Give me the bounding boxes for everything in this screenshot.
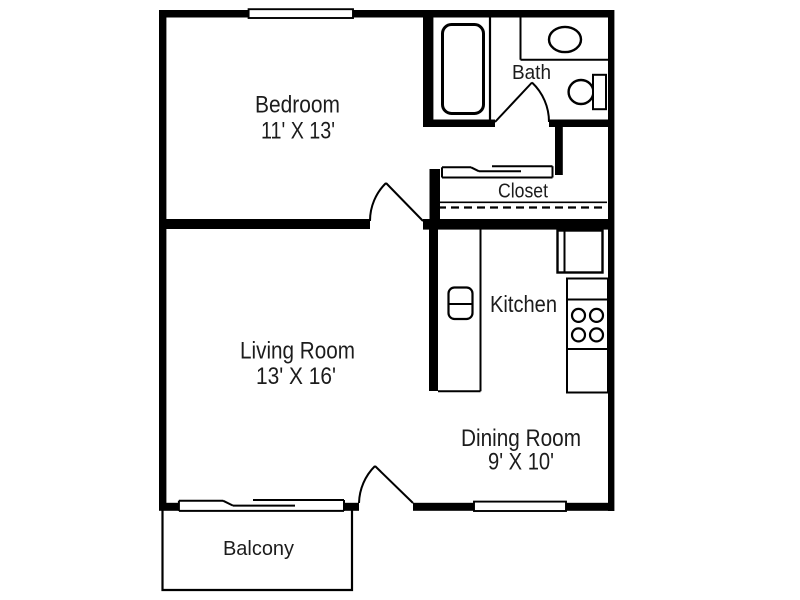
svg-text:Bedroom: Bedroom bbox=[255, 92, 340, 119]
svg-text:13' X 16': 13' X 16' bbox=[256, 363, 336, 390]
svg-text:9' X 10': 9' X 10' bbox=[488, 449, 554, 476]
svg-text:Kitchen: Kitchen bbox=[490, 291, 557, 317]
svg-text:Closet: Closet bbox=[498, 181, 548, 203]
svg-text:Living Room: Living Room bbox=[240, 338, 355, 365]
svg-text:Bath: Bath bbox=[512, 62, 551, 84]
svg-text:Balcony: Balcony bbox=[223, 538, 294, 560]
svg-text:11' X 13': 11' X 13' bbox=[261, 118, 335, 145]
